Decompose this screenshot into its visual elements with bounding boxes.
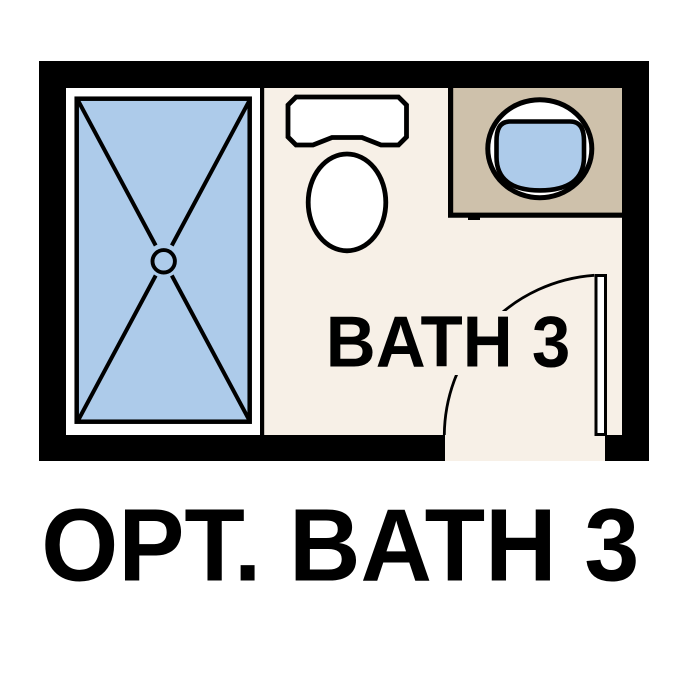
svg-text:BATH 3: BATH 3 bbox=[326, 301, 571, 382]
svg-text:OPT. BATH 3: OPT. BATH 3 bbox=[41, 488, 639, 603]
